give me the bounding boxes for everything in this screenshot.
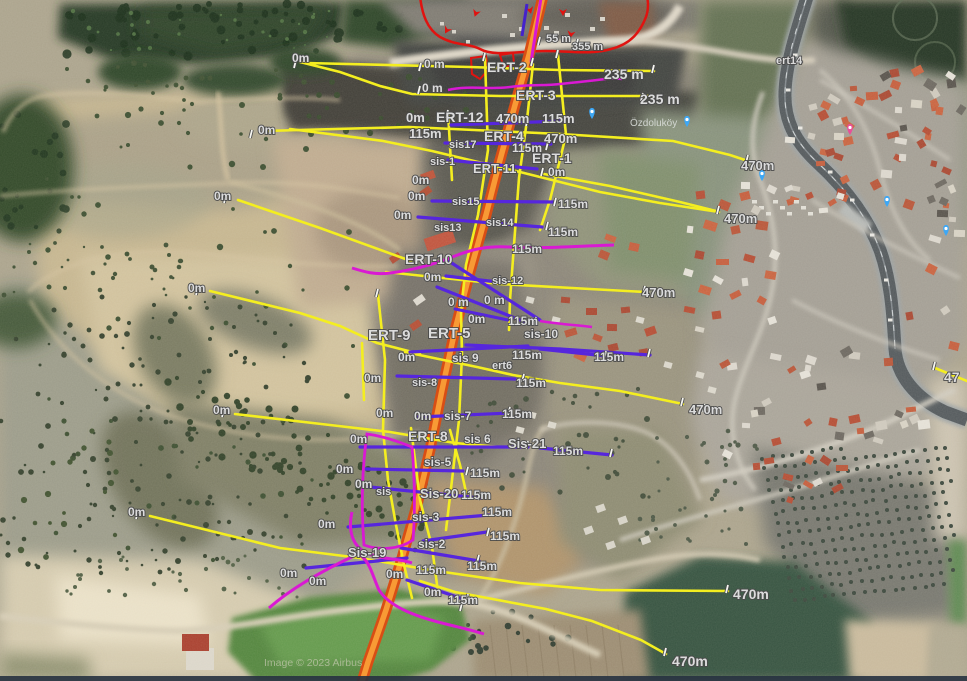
svg-text:470m: 470m xyxy=(724,211,757,226)
svg-text:115m: 115m xyxy=(553,444,583,458)
svg-text:470m: 470m xyxy=(544,131,577,146)
svg-text:115m: 115m xyxy=(512,348,542,362)
svg-text:115m: 115m xyxy=(594,350,624,364)
svg-text:Özdoluköy: Özdoluköy xyxy=(630,117,677,129)
svg-text:sis-10: sis-10 xyxy=(524,327,558,341)
svg-text:0m: 0m xyxy=(350,432,367,446)
svg-text:Image © 2023 Airbus: Image © 2023 Airbus xyxy=(264,657,362,669)
svg-text:sis: sis xyxy=(376,486,391,498)
svg-text:ert14: ert14 xyxy=(776,55,803,67)
svg-text:0m: 0m xyxy=(213,403,230,417)
svg-text:0m: 0m xyxy=(394,208,411,222)
svg-text:sis-3: sis-3 xyxy=(412,510,440,524)
svg-text:sis14: sis14 xyxy=(486,217,514,229)
svg-text:115m: 115m xyxy=(461,488,491,502)
svg-text:0m: 0m xyxy=(355,477,372,491)
svg-text:0m: 0m xyxy=(318,517,335,531)
svg-text:470m: 470m xyxy=(672,653,708,669)
svg-text:115m: 115m xyxy=(512,242,542,256)
svg-text:ERT-1: ERT-1 xyxy=(532,150,572,166)
svg-text:sis-1: sis-1 xyxy=(430,156,455,168)
svg-text:0m: 0m xyxy=(468,312,485,326)
svg-text:ERT-9: ERT-9 xyxy=(368,327,411,344)
svg-text:0m: 0m xyxy=(424,585,441,599)
svg-text:Sis-19: Sis-19 xyxy=(348,545,386,560)
svg-text:ERT-10: ERT-10 xyxy=(405,251,453,267)
svg-text:ERT-3: ERT-3 xyxy=(516,87,556,103)
svg-text:115m: 115m xyxy=(542,111,575,126)
svg-text:115m: 115m xyxy=(558,197,588,211)
svg-text:0 m: 0 m xyxy=(422,81,443,95)
svg-text:235 m: 235 m xyxy=(604,66,644,82)
svg-text:470m: 470m xyxy=(733,586,769,602)
svg-text:115m: 115m xyxy=(548,225,578,239)
svg-text:0m: 0m xyxy=(398,350,415,364)
svg-text:470m: 470m xyxy=(496,111,529,126)
svg-text:ERT-2: ERT-2 xyxy=(487,59,527,75)
svg-text:sis13: sis13 xyxy=(434,222,462,234)
svg-text:115m: 115m xyxy=(508,314,538,328)
svg-text:Sis-21: Sis-21 xyxy=(508,436,546,451)
svg-text:0m: 0m xyxy=(188,281,205,295)
svg-text:sis-12: sis-12 xyxy=(492,275,523,287)
svg-text:ert6: ert6 xyxy=(492,360,512,372)
svg-text:470m: 470m xyxy=(689,402,722,417)
svg-text:115m: 115m xyxy=(516,376,546,390)
svg-text:ERT-5: ERT-5 xyxy=(428,325,471,342)
svg-text:115m: 115m xyxy=(502,407,532,421)
svg-text:ERT-8: ERT-8 xyxy=(408,428,448,444)
svg-text:0m: 0m xyxy=(376,406,393,420)
svg-text:0 m: 0 m xyxy=(424,57,445,71)
svg-text:0m: 0m xyxy=(309,574,326,588)
svg-text:Sis-20: Sis-20 xyxy=(420,486,458,501)
svg-text:sis 9: sis 9 xyxy=(452,351,479,365)
svg-text:sis15: sis15 xyxy=(452,196,480,208)
svg-text:sis 6: sis 6 xyxy=(464,432,491,446)
svg-text:0 m: 0 m xyxy=(484,293,505,307)
svg-text:115m: 115m xyxy=(416,563,446,577)
svg-text:115m: 115m xyxy=(470,466,500,480)
svg-text:115m: 115m xyxy=(409,126,442,141)
svg-text:355 m: 355 m xyxy=(572,41,603,53)
svg-text:sis17: sis17 xyxy=(449,139,477,151)
svg-text:0m: 0m xyxy=(424,270,441,284)
svg-text:0m: 0m xyxy=(406,110,425,125)
svg-text:ERT-12: ERT-12 xyxy=(436,109,484,125)
svg-text:0m: 0m xyxy=(336,462,353,476)
svg-text:235 m: 235 m xyxy=(640,91,680,107)
svg-text:115m: 115m xyxy=(467,559,497,573)
svg-text:55 m: 55 m xyxy=(546,33,571,45)
svg-text:0m: 0m xyxy=(386,567,403,581)
svg-text:0m: 0m xyxy=(408,189,425,203)
svg-text:0m: 0m xyxy=(214,189,231,203)
svg-text:0m: 0m xyxy=(280,566,297,580)
svg-text:sis-7: sis-7 xyxy=(444,409,472,423)
svg-text:470m: 470m xyxy=(642,285,675,300)
svg-text:0m: 0m xyxy=(412,173,429,187)
svg-text:0 m: 0 m xyxy=(448,295,469,309)
svg-text:0m: 0m xyxy=(548,165,565,179)
svg-text:0m: 0m xyxy=(128,505,145,519)
svg-text:sis-8: sis-8 xyxy=(412,377,437,389)
svg-text:470m: 470m xyxy=(741,158,774,173)
svg-text:0m: 0m xyxy=(364,371,381,385)
svg-text:115m: 115m xyxy=(490,529,520,543)
svg-text:115m: 115m xyxy=(448,593,478,607)
svg-text:sis-5: sis-5 xyxy=(424,455,452,469)
svg-text:sis-2: sis-2 xyxy=(418,537,446,551)
svg-text:115m: 115m xyxy=(482,505,512,519)
svg-text:0m: 0m xyxy=(258,123,275,137)
svg-text:0m: 0m xyxy=(414,409,431,423)
svg-text:0m: 0m xyxy=(292,51,309,65)
svg-text:ERT-11: ERT-11 xyxy=(473,161,516,176)
svg-text:47: 47 xyxy=(944,369,960,385)
